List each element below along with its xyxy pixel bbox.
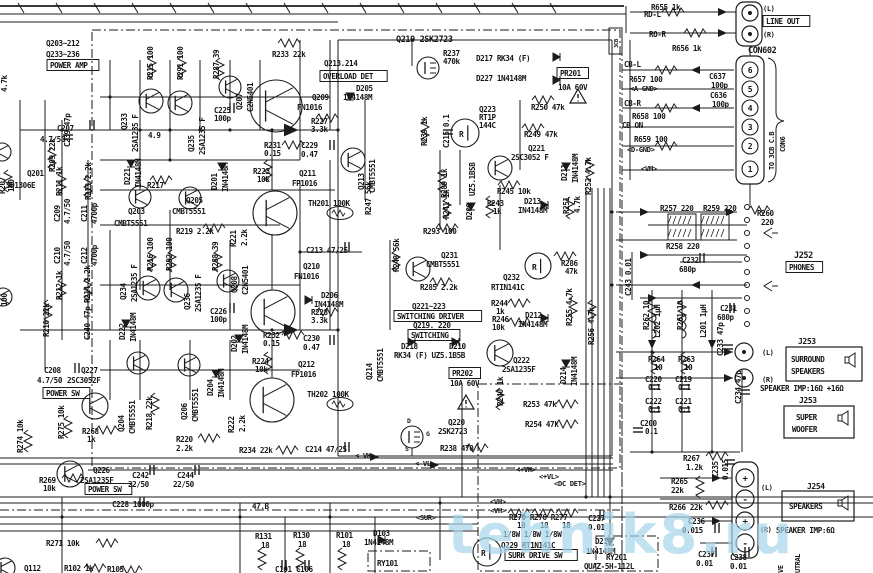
component-label: 0.15 xyxy=(264,149,282,158)
junction-dot xyxy=(168,158,171,161)
component-label: 4700p xyxy=(90,244,99,266)
wire xyxy=(170,3,176,13)
component-label: R275 10k xyxy=(57,405,66,439)
component-label: L201 1µH xyxy=(699,304,708,338)
component-label: 10 xyxy=(684,363,693,372)
junction-dot xyxy=(710,450,713,453)
component-label: 1k xyxy=(493,207,502,216)
component-label: R262 10 xyxy=(642,300,651,330)
wire xyxy=(512,3,518,13)
phones-jack-contact xyxy=(745,309,750,314)
component-label: Q233 xyxy=(120,112,129,130)
wire xyxy=(838,411,848,425)
wire xyxy=(266,88,293,102)
component-label: R207 xyxy=(0,177,7,194)
signal-arrow xyxy=(284,124,298,137)
wire xyxy=(18,3,24,13)
component-label: R292 100 xyxy=(165,237,174,271)
component-label: SPEAKER IMP:16Ω +16Ω xyxy=(760,384,844,393)
component-label: Q205 xyxy=(186,196,204,205)
wire xyxy=(716,216,719,224)
component-label: R287 39 xyxy=(212,49,221,79)
component-label: C637 xyxy=(709,72,726,81)
component-label: R658 100 xyxy=(632,112,666,121)
boxed-label: OVERLOAD DET xyxy=(323,72,374,81)
wire xyxy=(711,229,714,237)
component-label: Q222 xyxy=(513,356,530,365)
wire xyxy=(136,199,148,205)
wire xyxy=(175,95,188,102)
component-label: R219 2.2k xyxy=(176,227,214,236)
component-label: CMBT5551 xyxy=(172,207,206,216)
component-label: CB-R xyxy=(624,99,642,108)
component-label: 4.9 xyxy=(148,131,161,140)
component-label: Q221 xyxy=(528,144,546,153)
component-label: R211 1k xyxy=(55,166,64,196)
boxed-label: LINE OUT xyxy=(766,17,800,26)
component-label: D221 xyxy=(123,167,132,185)
wire xyxy=(266,216,289,228)
component-label: C214 47/25 xyxy=(305,445,348,454)
rail-tag: <D-GND> xyxy=(627,145,656,154)
signal-arrow xyxy=(724,374,733,382)
component-label: C242 xyxy=(132,471,149,480)
component-label: CMBT5551 xyxy=(114,219,148,228)
junction-dot xyxy=(438,501,441,504)
component-label: IN4148M xyxy=(221,162,230,192)
component-label: C239 47p xyxy=(63,113,72,147)
component-label: TH201 100K xyxy=(308,199,351,208)
rail-tag: <SUR> xyxy=(416,513,437,522)
component-label: 100p xyxy=(210,315,228,324)
component-label: 47.B xyxy=(252,502,270,511)
component-label: 10A 60V xyxy=(450,379,480,388)
component-label: Q214 xyxy=(365,362,374,380)
component-label: Q233~236 xyxy=(46,50,80,59)
component-label: R214 2.2k xyxy=(83,265,92,303)
wire xyxy=(721,229,724,237)
component-label: WOOFER xyxy=(792,425,818,434)
component-label: C240 47p xyxy=(83,306,92,340)
component-label: 4.7/50 xyxy=(37,376,63,385)
wire xyxy=(556,400,578,408)
component-label: IN4148M xyxy=(134,158,143,188)
component-label: 100 xyxy=(7,179,16,192)
wire xyxy=(683,229,686,237)
wire xyxy=(266,110,293,124)
component-label: D213 xyxy=(524,197,542,206)
component-label: Q211 xyxy=(299,169,317,178)
component-label: R657 100 xyxy=(629,75,663,84)
component-label: CON602 xyxy=(748,46,777,56)
boxed-label: PHONES xyxy=(789,263,815,272)
component-label: D xyxy=(407,417,411,425)
component-label: C243 0.01 xyxy=(624,258,633,296)
junction-dot xyxy=(298,250,301,253)
component-label: UZ5.1BSB xyxy=(468,162,477,196)
component-label: 0.1 xyxy=(678,383,691,392)
component-label: R267 xyxy=(683,454,700,463)
component-label: R131 xyxy=(255,532,273,541)
wire xyxy=(146,103,159,110)
component-label: G xyxy=(426,430,430,438)
component-label: R240 1k xyxy=(496,376,505,406)
component-label: R210 22k xyxy=(42,303,51,337)
component-label: Q204 xyxy=(117,414,126,432)
component-label: Q219. 220 xyxy=(413,321,451,330)
wire xyxy=(495,344,509,351)
component-label: (L) xyxy=(762,349,773,357)
component-label: R265 xyxy=(671,477,689,486)
wire xyxy=(132,3,138,13)
component-label: R233 22k xyxy=(272,50,306,59)
component-label: Q226 xyxy=(93,466,111,475)
transistor-symbol xyxy=(487,340,513,366)
connector-pin xyxy=(748,11,752,15)
component-label: IN4148M xyxy=(217,368,226,398)
wire xyxy=(146,93,159,100)
boxed-resistor xyxy=(668,214,696,240)
wire xyxy=(263,403,286,415)
component-label: Q203~212 xyxy=(46,39,79,48)
component-label: 4.7k xyxy=(0,74,9,92)
component-label: D204 xyxy=(206,378,215,396)
component-label: C210 xyxy=(53,246,62,264)
component-label: SURROUND xyxy=(791,355,825,364)
signal-arrow xyxy=(718,8,727,16)
wire xyxy=(711,216,714,224)
component-label: D214 xyxy=(559,366,568,384)
wire xyxy=(134,355,146,361)
component-label: D217 RK34 (F) xyxy=(476,54,530,63)
thermistor-symbol xyxy=(327,398,353,411)
boxed-label: SWITCHING DRIVER xyxy=(397,312,465,321)
component-label: RTIN141C xyxy=(491,283,525,292)
component-label: 18 xyxy=(342,540,351,549)
component-label: 0.47 xyxy=(303,343,320,352)
junction-dot xyxy=(336,128,339,131)
component-label: Q231 xyxy=(441,251,459,260)
component-label: R656 1k xyxy=(672,44,702,53)
component-label: 2SA1235 F xyxy=(194,274,203,312)
wire xyxy=(96,426,118,434)
component-label: 1N4148M xyxy=(364,538,394,547)
wire xyxy=(845,353,855,367)
phones-jack-contact xyxy=(745,231,750,236)
component-label: R220 xyxy=(176,435,194,444)
wire xyxy=(688,229,691,237)
component-label: Q208 xyxy=(230,275,239,293)
component-label: R293 100 xyxy=(423,227,457,236)
component-label: R253 47k xyxy=(523,400,557,409)
component-label: 1N4148M xyxy=(343,93,373,102)
wire xyxy=(764,281,778,291)
component-label: (R) xyxy=(762,376,773,384)
component-label: C233 47p xyxy=(716,322,725,356)
wire xyxy=(495,355,509,362)
component-label: FN1016 xyxy=(294,272,320,281)
component-label: 100p xyxy=(214,114,232,123)
component-label: CB-L xyxy=(624,60,642,69)
boxed-label: POWER AMP xyxy=(50,61,88,70)
transistor-symbol xyxy=(250,80,302,132)
junction-dot xyxy=(228,128,231,131)
component-label: R xyxy=(459,130,464,139)
component-label: R212 1k xyxy=(55,270,64,300)
component-label: 10A 60V xyxy=(558,83,588,92)
component-label: Q227 xyxy=(81,366,98,375)
surround-terminal xyxy=(742,350,746,354)
component-label: J253 xyxy=(799,396,817,405)
component-label: C230 xyxy=(303,334,321,343)
component-label: R221 xyxy=(229,229,238,247)
component-label: C636 xyxy=(710,91,728,100)
wire xyxy=(683,216,686,224)
wire xyxy=(96,539,118,547)
wire xyxy=(94,3,100,13)
component-label: IN4148M xyxy=(129,312,138,342)
boxed-label: POWER SW xyxy=(88,485,122,494)
component-label: D222 xyxy=(118,323,127,340)
component-label: R216 100 xyxy=(146,237,155,271)
wire xyxy=(348,162,361,169)
wire xyxy=(348,152,361,159)
component-label: R258 220 xyxy=(666,242,700,251)
component-label: Q234 xyxy=(119,282,128,300)
junction-dot xyxy=(336,328,339,331)
thermistor-symbol xyxy=(327,207,353,220)
junction-dot xyxy=(108,95,111,98)
component-label: 2SA1235F xyxy=(502,365,536,374)
component-label: R659 100 xyxy=(634,135,668,144)
component-label: 10k xyxy=(43,484,56,493)
junction-dot xyxy=(238,515,241,518)
component-label: D211 xyxy=(560,163,569,181)
component-label: 4700p xyxy=(90,202,99,224)
wire xyxy=(264,315,287,327)
component-label: Q210 xyxy=(303,262,321,271)
wire xyxy=(322,3,328,13)
wire xyxy=(65,465,79,472)
wire xyxy=(266,198,289,210)
component-label: 0.1 xyxy=(645,427,658,436)
component-label: FP1016 xyxy=(291,370,317,379)
wire xyxy=(263,385,286,397)
component-label: IN4148M xyxy=(570,356,579,386)
component-label: 2.2k xyxy=(238,414,247,432)
component-label: TO 3CB C.B xyxy=(768,132,776,170)
transistor-symbol xyxy=(250,378,294,422)
component-label: 2SA1235 F xyxy=(131,114,140,152)
component-label: D218 xyxy=(401,342,419,351)
component-label: R291 100 xyxy=(176,46,185,80)
wire xyxy=(226,79,238,85)
component-label: (L) xyxy=(763,5,774,13)
junction-dot xyxy=(610,283,613,286)
wire xyxy=(0,146,8,151)
transistor-symbol xyxy=(525,253,551,279)
wire xyxy=(198,434,220,442)
con602-pin-number: 4 xyxy=(748,104,753,113)
component-label: Q219 2SK2723 xyxy=(396,35,453,45)
component-label: 3CB xyxy=(614,38,620,48)
component-label: R260 xyxy=(757,209,775,218)
rail-tag: <-VL> xyxy=(415,459,436,468)
component-label: R252 4.7k xyxy=(584,157,593,195)
component-label: CMBT5551 xyxy=(376,348,385,382)
component-label: R250 47k xyxy=(531,103,565,112)
component-label: IN4148M xyxy=(518,320,548,329)
component-label: 4.7/50 xyxy=(63,198,72,224)
transistor-symbol xyxy=(178,354,200,376)
component-label: 22/50 xyxy=(173,480,195,489)
component-label: 4.7/50 xyxy=(63,240,72,266)
component-label: R130 xyxy=(293,531,311,540)
boxed-resistor xyxy=(701,214,729,240)
diode-symbol xyxy=(305,296,312,304)
con602-pin-number: 2 xyxy=(748,142,753,151)
component-label: IN4148M xyxy=(241,324,250,354)
component-label: R257 220 xyxy=(660,204,694,213)
component-label: C244 xyxy=(177,471,195,480)
wire xyxy=(673,229,676,237)
component-label: Q220 xyxy=(448,418,466,427)
component-label: 100 xyxy=(0,293,9,306)
component-label: CMBT5551 xyxy=(191,388,200,422)
transistor-symbol xyxy=(0,143,11,161)
component-label: L202 1µH xyxy=(653,304,662,338)
wire xyxy=(1,561,12,567)
wire xyxy=(175,105,188,112)
label-layer: Q203~212Q233~236C2074.7/50Q201SD1306ER23… xyxy=(0,3,844,573)
component-label: C229 xyxy=(301,141,319,150)
component-label: RK34 (F) UZ5.1B5B xyxy=(394,351,466,360)
component-label: Q235 xyxy=(187,134,196,152)
component-label: R215 100 xyxy=(146,46,155,80)
wire xyxy=(706,229,709,237)
wire xyxy=(171,292,184,299)
component-label: IN4148M xyxy=(571,153,580,183)
component-label: 2SC3052F xyxy=(67,376,101,385)
component-label: Q221~223 xyxy=(412,302,446,311)
component-label: D206 xyxy=(321,291,339,300)
junction-dot xyxy=(650,450,653,453)
boxed-label: PR201 xyxy=(560,69,582,78)
signal-arrow xyxy=(640,208,649,216)
junction-dot xyxy=(650,350,653,353)
wire xyxy=(508,299,530,307)
transistor-symbol xyxy=(341,148,365,172)
component-label: R101 xyxy=(336,531,354,540)
component-label: RD-L xyxy=(644,10,662,19)
phones-jack-contact xyxy=(745,218,750,223)
junction-dot xyxy=(270,128,273,131)
phones-jack-contact xyxy=(745,205,750,210)
component-label: C106 xyxy=(296,565,314,573)
component-label: 0.1 xyxy=(648,383,661,392)
signal-arrow xyxy=(718,29,727,37)
signal-arrow xyxy=(648,340,656,349)
junction-dot xyxy=(608,495,611,498)
component-label: 10k xyxy=(257,175,270,184)
component-label: C209 xyxy=(53,204,62,222)
boxed-label: PR202 xyxy=(452,369,473,378)
component-label: C231 xyxy=(720,304,738,313)
component-label: 18 xyxy=(298,540,307,549)
component-label: 2SA1235 F xyxy=(198,117,207,155)
component-label: R222 xyxy=(227,416,236,433)
boxed-label: SWITCHING xyxy=(411,331,449,340)
wire xyxy=(246,3,252,13)
component-label: SUPER xyxy=(796,413,818,422)
component-label: R254 47k xyxy=(525,420,559,429)
diode-symbol xyxy=(553,53,560,61)
component-label: 144C xyxy=(479,121,497,130)
power-amp-schematic: 654321+-+- Q203~212Q233~236C2074.7/50Q20… xyxy=(0,0,873,573)
wire xyxy=(678,216,681,224)
component-label: R261 10 xyxy=(676,300,685,330)
wire xyxy=(56,3,62,13)
component-label: 10 xyxy=(654,363,663,372)
component-label: D210 xyxy=(449,342,467,351)
transistor-symbol xyxy=(127,352,149,374)
wire xyxy=(413,271,426,278)
wire xyxy=(258,548,266,570)
component-label: 2.2k xyxy=(176,444,194,453)
phones-jack-contact xyxy=(745,244,750,249)
component-label: RO-R xyxy=(649,30,667,39)
component-label: 1.2k xyxy=(686,463,704,472)
line-out-connector xyxy=(736,2,762,46)
component-label: 2SK2723 xyxy=(438,427,468,436)
component-label: C211 xyxy=(80,204,89,222)
component-label: J253 xyxy=(798,337,816,346)
component-label: CON6 xyxy=(779,137,787,152)
connector-pin xyxy=(748,32,752,36)
wire xyxy=(278,39,300,47)
component-label: C2N5401 xyxy=(241,265,250,295)
wire xyxy=(264,297,287,309)
component-label: D202 xyxy=(230,335,239,352)
speaker-terminal-sign: + xyxy=(742,475,748,485)
component-label: 10k xyxy=(492,323,505,332)
wire xyxy=(338,548,346,570)
component-label: 0.1 xyxy=(678,405,691,414)
component-label: R247 56k xyxy=(364,181,373,215)
wire xyxy=(495,160,508,167)
wire xyxy=(413,261,426,268)
con602-pin-number: 3 xyxy=(748,123,753,132)
junction-dot xyxy=(610,210,613,213)
signal-arrow xyxy=(691,66,700,74)
component-label: 2SA1235 F xyxy=(130,264,139,302)
component-label: CMBT5551 xyxy=(128,400,137,434)
component-label: C228 1000p xyxy=(112,500,155,509)
component-label: 680p xyxy=(717,313,735,322)
component-label: D201 xyxy=(210,172,219,190)
watermark-text: tehnik8.ru xyxy=(448,503,795,566)
transistor-symbol xyxy=(168,91,192,115)
component-label: C232 xyxy=(682,256,699,265)
component-label: R274 10k xyxy=(16,419,25,453)
component-label: IN4148M xyxy=(518,206,548,215)
component-label: R102 1k xyxy=(64,564,94,573)
phones-jack-contact xyxy=(745,296,750,301)
transistor-symbol xyxy=(139,89,163,113)
component-label: Q236 xyxy=(183,292,192,310)
wire xyxy=(706,452,728,460)
component-label: (R) xyxy=(763,31,774,39)
